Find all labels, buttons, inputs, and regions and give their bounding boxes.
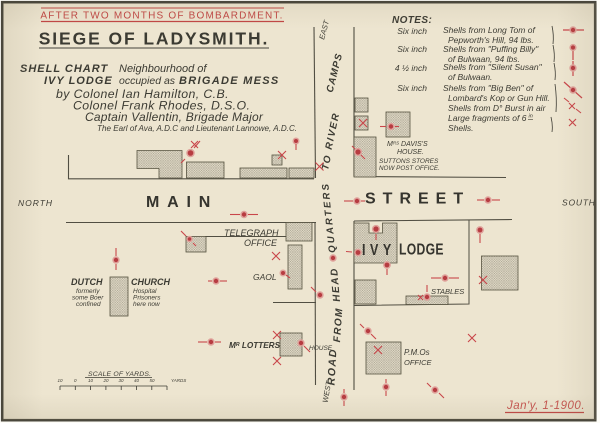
svg-text:HOUSE: HOUSE bbox=[309, 345, 333, 352]
svg-text:Neighbourhood of: Neighbourhood of bbox=[119, 63, 207, 75]
svg-text:of Bulwaan.: of Bulwaan. bbox=[448, 72, 492, 82]
svg-text:GAOL: GAOL bbox=[253, 272, 277, 282]
svg-text:Janʹy, 1-1900.: Janʹy, 1-1900. bbox=[506, 400, 585, 412]
svg-text:Shells.: Shells. bbox=[448, 123, 474, 133]
svg-text:Shells from D° Burst in air: Shells from D° Burst in air bbox=[448, 103, 547, 113]
svg-text:Lombard's Kop or Gun Hill.: Lombard's Kop or Gun Hill. bbox=[448, 93, 550, 103]
svg-text:4 ½ inch: 4 ½ inch bbox=[395, 63, 427, 73]
svg-text:Six inch: Six inch bbox=[397, 44, 427, 54]
svg-text:Shells from Long Tom of: Shells from Long Tom of bbox=[443, 25, 536, 35]
svg-text:STABLES: STABLES bbox=[431, 287, 464, 296]
svg-text:Six inch: Six inch bbox=[397, 26, 427, 36]
svg-text:20: 20 bbox=[103, 378, 110, 383]
svg-text:50: 50 bbox=[150, 378, 156, 383]
svg-text:40: 40 bbox=[134, 378, 140, 383]
svg-text:P.M.Os: P.M.Os bbox=[404, 348, 430, 357]
svg-text:AFTER TWO MONTHS OF BOMBARDMEN: AFTER TWO MONTHS OF BOMBARDMENT. bbox=[40, 11, 283, 22]
svg-text:Shells from "Silent Susan": Shells from "Silent Susan" bbox=[443, 62, 543, 72]
svg-text:occupied as: occupied as bbox=[119, 75, 176, 87]
svg-text:IVY: IVY bbox=[362, 242, 396, 260]
svg-text:OFFICE: OFFICE bbox=[244, 238, 278, 248]
svg-text:ROAD: ROAD bbox=[326, 348, 340, 386]
svg-text:TELEGRAPH: TELEGRAPH bbox=[224, 228, 279, 238]
svg-text:10: 10 bbox=[88, 378, 94, 383]
svg-text:Large fragments of 6: Large fragments of 6 bbox=[448, 113, 527, 123]
svg-text:MAIN: MAIN bbox=[146, 194, 218, 211]
svg-text:SCALE OF YARDS.: SCALE OF YARDS. bbox=[88, 371, 151, 378]
svg-text:DUTCH: DUTCH bbox=[71, 277, 103, 287]
svg-text:Shells from "Big Ben" of: Shells from "Big Ben" of bbox=[443, 83, 535, 93]
svg-text:NOW POST OFFICE.: NOW POST OFFICE. bbox=[379, 165, 440, 172]
svg-text:HOUSE.: HOUSE. bbox=[397, 149, 424, 156]
svg-text:The Earl of Ava, A.D.C and Lie: The Earl of Ava, A.D.C and Lieutenant La… bbox=[97, 124, 297, 133]
svg-text:OFFICE: OFFICE bbox=[404, 358, 432, 367]
svg-text:NOTES:: NOTES: bbox=[392, 15, 432, 26]
svg-text:NORTH: NORTH bbox=[18, 198, 53, 208]
svg-text:BRIGADE MESS: BRIGADE MESS bbox=[179, 75, 280, 87]
svg-text:STREET: STREET bbox=[365, 191, 470, 208]
svg-text:Shells from "Puffing Billy": Shells from "Puffing Billy" bbox=[443, 44, 539, 54]
svg-text:here now: here now bbox=[133, 301, 161, 308]
svg-text:SUTTONS STORES: SUTTONS STORES bbox=[379, 158, 439, 165]
svg-text:30: 30 bbox=[119, 378, 125, 383]
svg-text:Captain Vallentin, Brigade Maj: Captain Vallentin, Brigade Major bbox=[85, 110, 264, 124]
svg-text:SIEGE OF LADYSMITH.: SIEGE OF LADYSMITH. bbox=[39, 29, 270, 49]
svg-text:confined: confined bbox=[76, 301, 101, 308]
svg-text:IVY LODGE: IVY LODGE bbox=[44, 75, 113, 87]
svg-text:LODGE: LODGE bbox=[399, 241, 444, 259]
svg-text:in: in bbox=[529, 114, 533, 120]
svg-text:SHELL CHART: SHELL CHART bbox=[20, 63, 108, 75]
svg-text:YARDS: YARDS bbox=[171, 378, 186, 383]
svg-text:10: 10 bbox=[58, 378, 64, 383]
svg-text:SOUTH: SOUTH bbox=[562, 198, 596, 208]
svg-text:Six inch: Six inch bbox=[397, 83, 427, 93]
svg-text:CHURCH: CHURCH bbox=[131, 277, 170, 287]
